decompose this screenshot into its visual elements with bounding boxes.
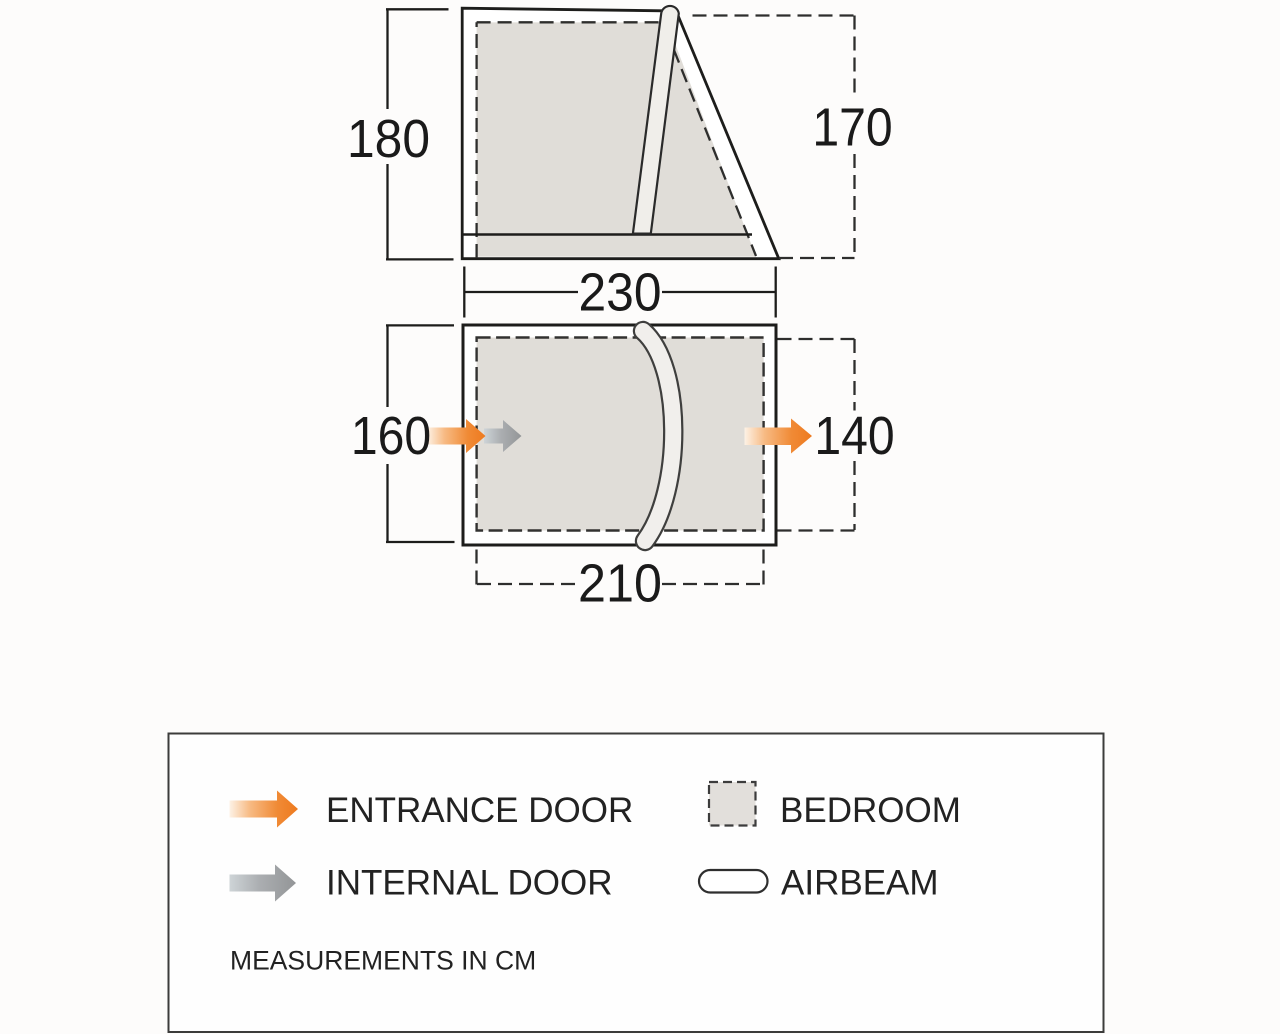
svg-text:210: 210 bbox=[578, 554, 662, 614]
svg-text:BEDROOM: BEDROOM bbox=[780, 791, 961, 830]
svg-text:MEASUREMENTS IN CM: MEASUREMENTS IN CM bbox=[230, 945, 536, 975]
svg-text:160: 160 bbox=[351, 406, 431, 466]
svg-text:INTERNAL DOOR: INTERNAL DOOR bbox=[326, 864, 613, 903]
svg-text:180: 180 bbox=[347, 108, 430, 168]
svg-text:ENTRANCE DOOR: ENTRANCE DOOR bbox=[326, 791, 633, 830]
svg-text:170: 170 bbox=[812, 97, 892, 157]
svg-text:AIRBEAM: AIRBEAM bbox=[781, 864, 939, 903]
svg-text:230: 230 bbox=[578, 262, 661, 322]
svg-text:140: 140 bbox=[814, 406, 894, 466]
